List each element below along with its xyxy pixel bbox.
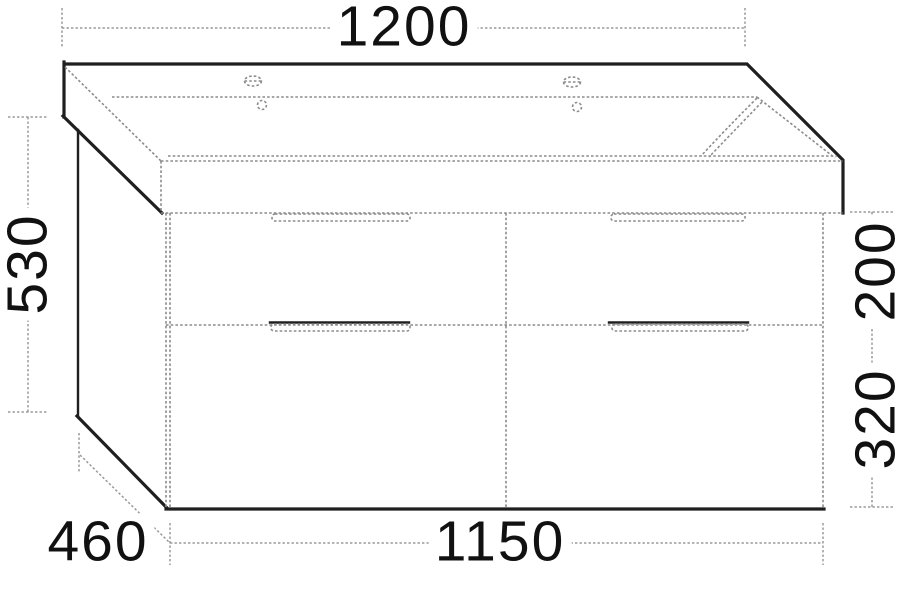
dimension-label-bottom-width: 1150 [429,513,572,570]
dimension-label-right-lower-height: 320 [848,362,905,475]
left-overflow-hole-icon [258,101,267,110]
dimension-label-left-height: 530 [0,207,57,320]
drawing-linework [0,0,916,590]
dimension-label-top-width: 1200 [331,0,478,55]
dimension-label-right-upper-height: 200 [848,214,905,327]
handle-upper-left [272,214,410,221]
drawer-handles [270,214,748,331]
dimension-label-depth: 460 [41,513,154,570]
cabinet-solid-edges [77,416,824,509]
tap-holes [245,76,582,112]
basin-outline [63,62,843,213]
vanity-cabinet [77,130,824,509]
right-overflow-hole-icon [573,103,582,112]
technical-drawing-canvas: 1200 530 200 320 460 1150 [0,0,916,590]
cabinet-hidden-edges [166,213,823,508]
washbasin [63,62,843,213]
basin-bowl-curve [701,98,762,157]
handle-upper-right [611,214,745,221]
